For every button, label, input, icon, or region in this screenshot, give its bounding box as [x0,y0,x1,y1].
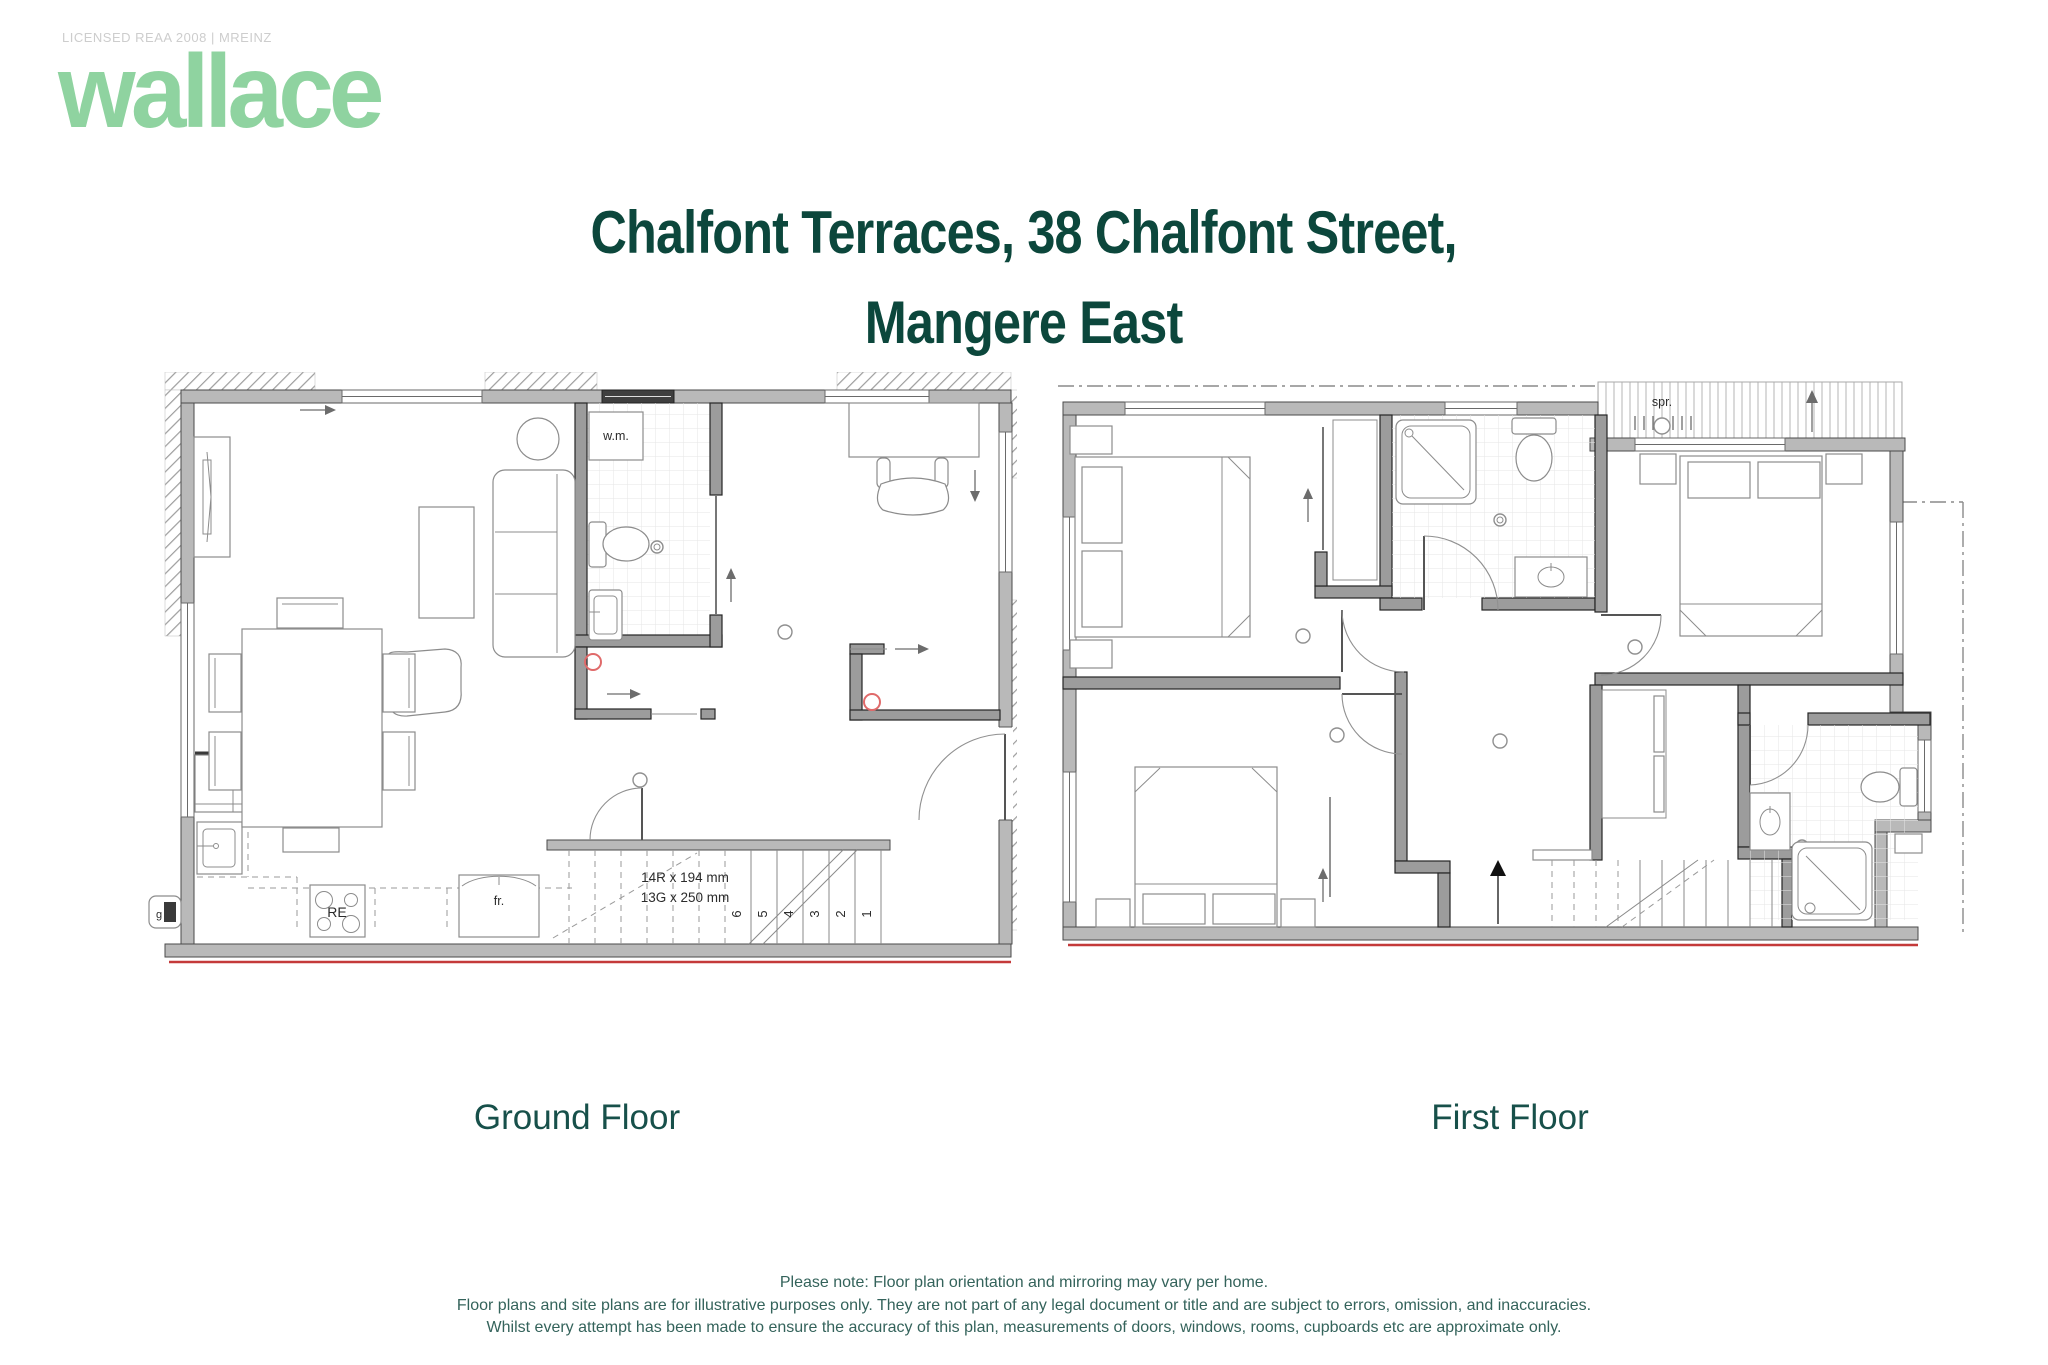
vanity [1750,793,1790,850]
bedroom-3 [1601,454,1862,675]
kitchen-sink [197,822,242,874]
dining-chair [277,598,343,628]
smoke-alarm [1493,734,1507,748]
svg-text:2: 2 [833,910,848,917]
title-line-1: Chalfont Terraces, 38 Chalfont Street, [591,188,1457,278]
stair-up-arrow [1490,860,1506,924]
exterior-unit [1895,834,1922,853]
stair-note-2: 13G x 250 mm [641,890,730,905]
smoke-alarm [633,773,647,787]
tv-unit [194,437,230,557]
bedroom-2 [1096,767,1330,927]
gas-meter: g [149,896,181,928]
ground-floor-label: Ground Floor [137,1098,1017,1138]
smoke-alarm [1296,629,1310,643]
stairs-first [1490,850,1772,927]
bedroom-1 [1070,420,1377,668]
vanity [1515,557,1587,597]
floor-drain [651,541,663,553]
slider-direction-arrow [300,405,336,415]
deck: spr. [1598,382,1902,438]
shower [1792,842,1872,920]
bedroom2-slider-arrow [1318,797,1330,902]
floor-drain [1494,514,1506,526]
stairs: 14R x 194 mm 13G x 250 mm 6 5 4 3 2 1 [547,840,890,944]
first-floor-plan: spr. [1050,372,1970,972]
window-direction-arrow [970,470,980,502]
entry-door [919,734,1005,820]
first-floor-label: First Floor [1050,1098,1970,1138]
disclaimer-line-3: Whilst every attempt has been made to en… [0,1317,2048,1340]
robe-slider [1303,420,1377,580]
svg-text:4: 4 [781,910,796,917]
coffee-table [419,507,474,618]
desk [849,403,979,515]
fridge-label: fr. [494,894,504,908]
hall-door [590,788,642,840]
hall-doors [1330,610,1507,754]
ground-bathroom: w.m. [575,403,736,647]
svg-text:5: 5 [755,910,770,917]
stove: RE [310,885,365,937]
svg-text:1: 1 [859,910,874,917]
linen-wardrobe [1602,690,1666,818]
gas-meter-label: g [156,909,162,921]
property-title: Chalfont Terraces, 38 Chalfont Street, M… [0,188,2048,368]
ground-floor-plan: w.m. [137,372,1017,972]
shower [1396,420,1476,504]
ensuite [1750,725,1922,920]
disclaimer: Please note: Floor plan orientation and … [0,1272,2048,1340]
fridge: fr. [459,875,539,937]
wallace-logo: wallace [58,45,380,141]
side-table [517,418,559,460]
smoke-alarm [1628,640,1642,654]
svg-text:3: 3 [807,910,822,917]
vanity-basin [589,590,622,640]
washing-machine-label: w.m. [602,429,629,443]
smoke-alarm [1330,728,1344,742]
sofa [493,470,575,657]
floor-plan-sheet: LICENSED REAA 2008 | MREINZ wallace Chal… [0,0,2048,1365]
smoke-alarm [778,625,792,639]
disclaimer-line-1: Please note: Floor plan orientation and … [0,1272,2048,1295]
disclaimer-line-2: Floor plans and site plans are for illus… [0,1295,2048,1318]
svg-text:6: 6 [729,910,744,917]
stair-note-1: 14R x 194 mm [641,870,729,885]
understair-cupboard [575,647,715,719]
washing-machine: w.m. [589,412,643,460]
slider-arrow [726,568,736,602]
brand-block: LICENSED REAA 2008 | MREINZ wallace [58,30,393,141]
stove-label: RE [327,904,346,920]
dining-table [209,598,415,852]
entry-cupboard [850,644,1000,720]
sprinkler-label: spr. [1652,395,1672,409]
title-line-2: Mangere East [591,278,1457,368]
office-chair [877,458,949,515]
main-bathroom [1392,415,1595,610]
